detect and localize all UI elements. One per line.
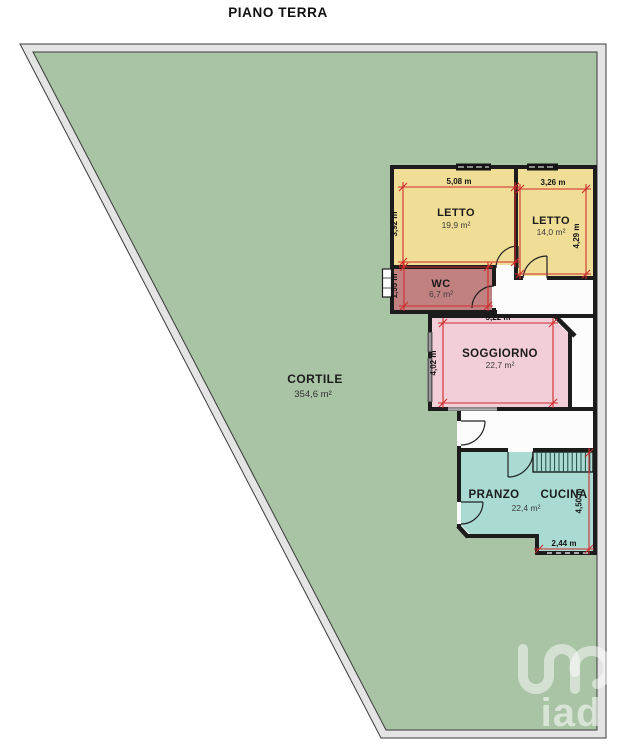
- label-soggiorno: SOGGIORNO: [462, 348, 538, 360]
- label-cucina: CUCINA: [540, 489, 587, 501]
- dim-wc-depth: 1,55 m: [390, 274, 399, 299]
- dim-soggiorno-depth: 4,02 m: [429, 351, 438, 376]
- label-letto-1: LETTO: [437, 207, 475, 219]
- floor-plan: PIANO TERRA: [0, 0, 620, 748]
- label-pranzo: PRANZO: [469, 489, 520, 501]
- area-pranzo-cucina: 22,4 m²: [512, 503, 541, 513]
- area-cortile: 354,6 m²: [294, 389, 332, 400]
- area-wc: 6,7 m²: [429, 289, 453, 299]
- dim-soggiorno-width: 5,22 m: [486, 313, 511, 322]
- area-soggiorno: 22,7 m²: [486, 360, 515, 370]
- area-letto-1: 19,9 m²: [442, 220, 471, 230]
- iad-logo-text: iad: [541, 691, 602, 735]
- label-letto-2: LETTO: [532, 215, 570, 227]
- dim-kitchen-bottom-width: 2,44 m: [552, 539, 577, 548]
- area-letto-2: 14,0 m²: [537, 227, 566, 237]
- dim-letto2-depth: 4,29 m: [572, 224, 581, 249]
- dim-letto1-depth: 3,92 m: [390, 212, 399, 237]
- dim-letto2-width: 3,26 m: [541, 178, 566, 187]
- label-cortile: CORTILE: [287, 372, 342, 386]
- dim-letto1-width: 5,08 m: [447, 177, 472, 186]
- page-title: PIANO TERRA: [228, 5, 328, 20]
